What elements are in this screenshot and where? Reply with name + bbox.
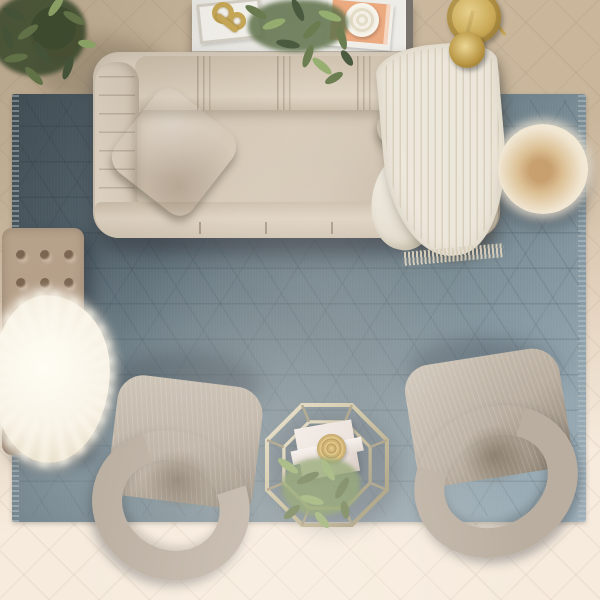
fur-pouf — [498, 124, 588, 214]
fur-throw — [0, 295, 110, 463]
tuft-button — [64, 278, 74, 288]
candle — [345, 3, 379, 37]
tuft-button — [40, 278, 50, 288]
armchair-left — [80, 370, 273, 589]
armchair-right — [385, 343, 596, 569]
tuft-button — [16, 278, 26, 288]
tuft-button — [40, 250, 50, 260]
living-room-scene — [0, 0, 600, 600]
lamp-shade — [449, 32, 485, 68]
tuft-button — [16, 250, 26, 260]
tuft-button — [64, 250, 74, 260]
